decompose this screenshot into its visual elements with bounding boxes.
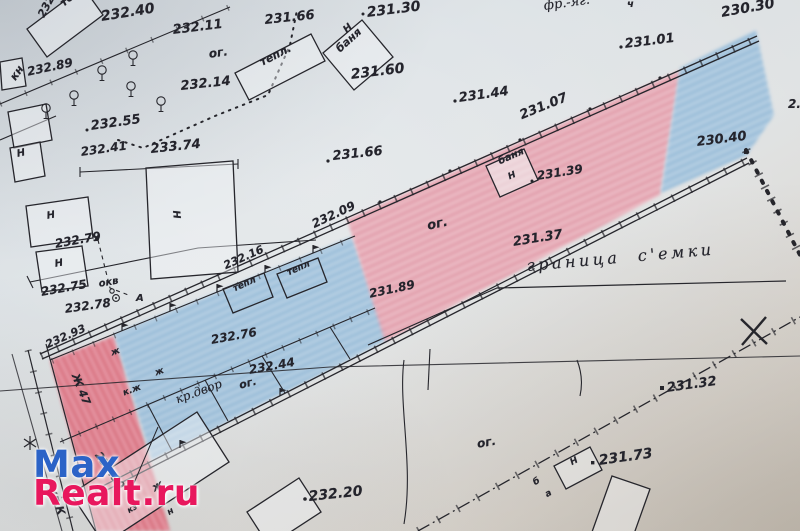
watermark: Max Realt.ru (33, 450, 200, 508)
map-label: ог. (208, 45, 229, 60)
map-label: ог. (426, 216, 449, 233)
parcel-pink-main (347, 70, 680, 342)
map-label: А (136, 294, 144, 304)
map-label: Н (46, 211, 56, 222)
building-greenhouse-top (235, 34, 325, 100)
building-shed-se (554, 447, 602, 489)
map-label: 2. (788, 98, 800, 110)
map-label: Н (16, 148, 26, 160)
map-label: ч (627, 0, 634, 10)
map-label: ог. (476, 435, 497, 450)
cross-mark (741, 317, 767, 345)
watermark-realt: Realt.ru (33, 480, 200, 509)
map-label: Н (170, 210, 181, 219)
survey-map-photo: 232.40232.11ог.231.66231.30фр.-яг.ч230.3… (0, 0, 800, 531)
map-label: Н (54, 259, 64, 270)
right-fence (746, 150, 800, 255)
